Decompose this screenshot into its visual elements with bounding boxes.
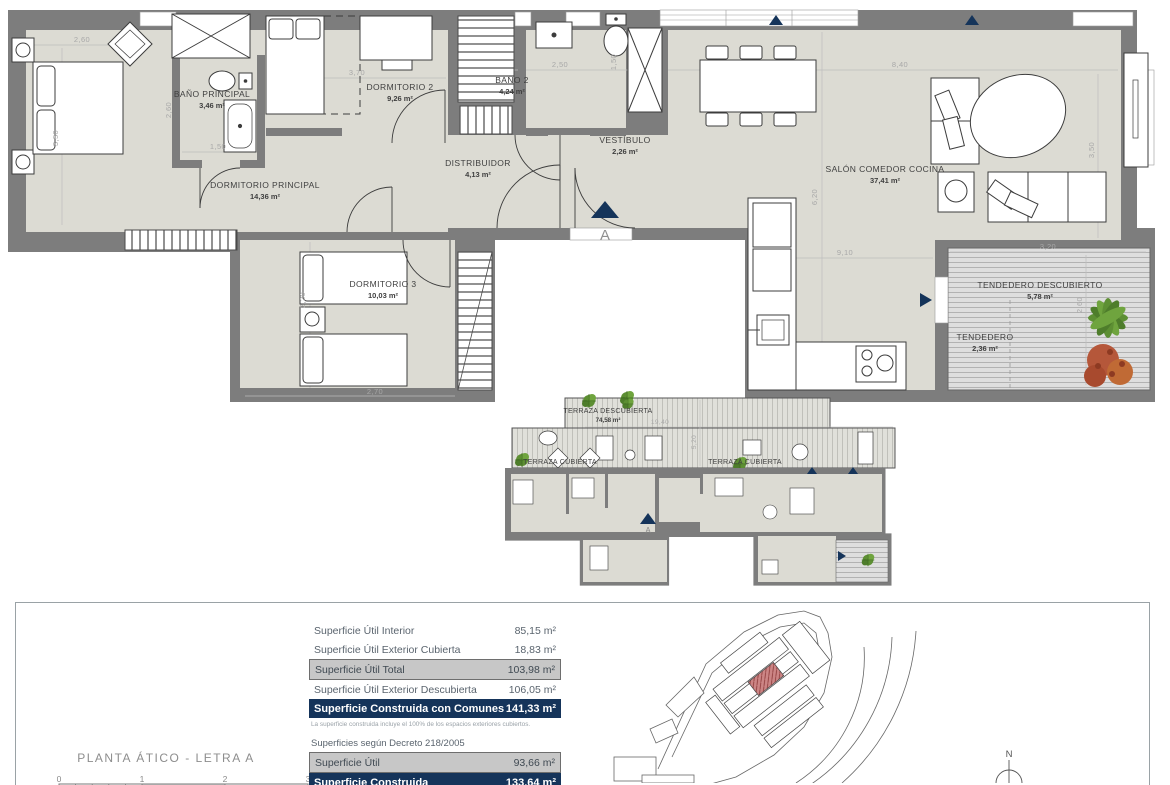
room-label-tendedero: TENDEDERO: [957, 332, 1014, 342]
north-compass: N: [996, 749, 1022, 783]
svg-text:9,10: 9,10: [837, 248, 853, 257]
area-tables: Superficie Útil Interior 85,15 m² Superf…: [309, 621, 561, 785]
svg-text:10,03 m²: 10,03 m²: [368, 291, 399, 300]
room-label-terraza-descubierta: TERRAZA DESCUBIERTA: [563, 408, 652, 415]
room-label-dormitorio-2: DORMITORIO 2: [367, 82, 434, 92]
table-row: Superficie Útil Exterior Cubierta 18,83 …: [309, 640, 561, 659]
svg-text:3,20: 3,20: [298, 292, 307, 308]
table-row: Superficie Útil Interior 85,15 m²: [309, 621, 561, 640]
svg-text:14,36 m²: 14,36 m²: [250, 192, 281, 201]
svg-text:2: 2: [223, 774, 228, 784]
svg-text:1: 1: [140, 774, 145, 784]
svg-text:2,26 m²: 2,26 m²: [612, 147, 638, 156]
floor-plan-sheet: A DORMITORIO PRINCIPAL 14,36 m² BAÑO PRI…: [0, 0, 1170, 785]
svg-text:3,46 m²: 3,46 m²: [199, 101, 225, 110]
room-label-tendedero-descubierto: TENDEDERO DESCUBIERTO: [977, 280, 1102, 290]
svg-text:4,13 m²: 4,13 m²: [465, 170, 491, 179]
decree-table-title: Superficies según Decreto 218/2005: [311, 738, 561, 749]
svg-text:3,50: 3,50: [1087, 142, 1096, 158]
floor-plan-drawing: A DORMITORIO PRINCIPAL 14,36 m² BAÑO PRI…: [0, 0, 1170, 600]
svg-text:5,78 m²: 5,78 m²: [1027, 292, 1053, 301]
room-label-bano-principal: BAÑO PRINCIPAL: [174, 89, 250, 99]
mini-section-marker-a: A: [645, 526, 651, 535]
room-label-dormitorio-3: DORMITORIO 3: [350, 279, 417, 289]
svg-text:2,60: 2,60: [164, 102, 173, 118]
main-plan: A DORMITORIO PRINCIPAL 14,36 m² BAÑO PRI…: [8, 10, 1155, 402]
room-label-terraza-cubierta-der: TERRAZA CUBIERTA: [708, 459, 782, 466]
table-row-highlight-gray: Superficie Útil 93,66 m²: [309, 752, 561, 773]
table-row-highlight-navy: Superficie Construida con Comunes 141,33…: [309, 699, 561, 718]
north-label: N: [1006, 749, 1013, 760]
room-label-vestibulo: VESTÍBULO: [599, 135, 650, 145]
svg-text:2,50: 2,50: [552, 60, 568, 69]
room-label-salon: SALÓN COMEDOR COCINA: [826, 164, 945, 174]
svg-text:2,70: 2,70: [367, 387, 383, 396]
svg-text:74,58 m²: 74,58 m²: [596, 417, 621, 424]
svg-text:37,41 m²: 37,41 m²: [870, 176, 901, 185]
svg-text:2,60: 2,60: [1075, 297, 1084, 313]
svg-text:1,50: 1,50: [210, 142, 226, 151]
site-key-plan: N: [606, 607, 1036, 783]
svg-text:3,20: 3,20: [1040, 242, 1056, 251]
svg-text:6,20: 6,20: [810, 189, 819, 205]
table-footnote: La superficie construida incluye el 100%…: [311, 721, 561, 728]
svg-text:19,40: 19,40: [651, 419, 669, 426]
room-label-dormitorio-principal: DORMITORIO PRINCIPAL: [210, 180, 320, 190]
section-marker-a: A: [600, 227, 610, 244]
svg-text:9,26 m²: 9,26 m²: [387, 94, 413, 103]
terrace-plan: TERRAZA DESCUBIERTA 74,58 m² 19,40 5,20 …: [505, 391, 895, 586]
plan-title: PLANTA ÁTICO - LETRA A: [56, 751, 276, 765]
svg-text:2,36 m²: 2,36 m²: [972, 344, 998, 353]
table-row: Superficie Útil Exterior Descubierta 106…: [309, 680, 561, 699]
svg-text:4,24 m²: 4,24 m²: [499, 87, 525, 96]
scale-bar: 0 1 2 3: [46, 774, 326, 785]
mini-apartment-plan: A: [505, 467, 892, 586]
room-label-distribuidor: DISTRIBUIDOR: [445, 158, 511, 168]
room-label-terraza-cubierta-izq: TERRAZA CUBIERTA: [523, 459, 597, 466]
svg-text:3,70: 3,70: [349, 68, 365, 77]
room-label-bano-2: BAÑO 2: [495, 75, 529, 85]
svg-text:5,20: 5,20: [691, 435, 698, 449]
info-panel: PLANTA ÁTICO - LETRA A 0 1 2 3 Superfici…: [15, 602, 1150, 785]
svg-text:2,60: 2,60: [74, 35, 90, 44]
svg-text:1,50: 1,50: [609, 54, 618, 70]
svg-text:3,50: 3,50: [51, 130, 60, 146]
svg-text:8,40: 8,40: [892, 60, 908, 69]
table-row-highlight-navy: Superficie Construida 133,64 m²: [309, 773, 561, 785]
table-row-highlight-gray: Superficie Útil Total 103,98 m²: [309, 659, 561, 680]
svg-text:0: 0: [57, 774, 62, 784]
